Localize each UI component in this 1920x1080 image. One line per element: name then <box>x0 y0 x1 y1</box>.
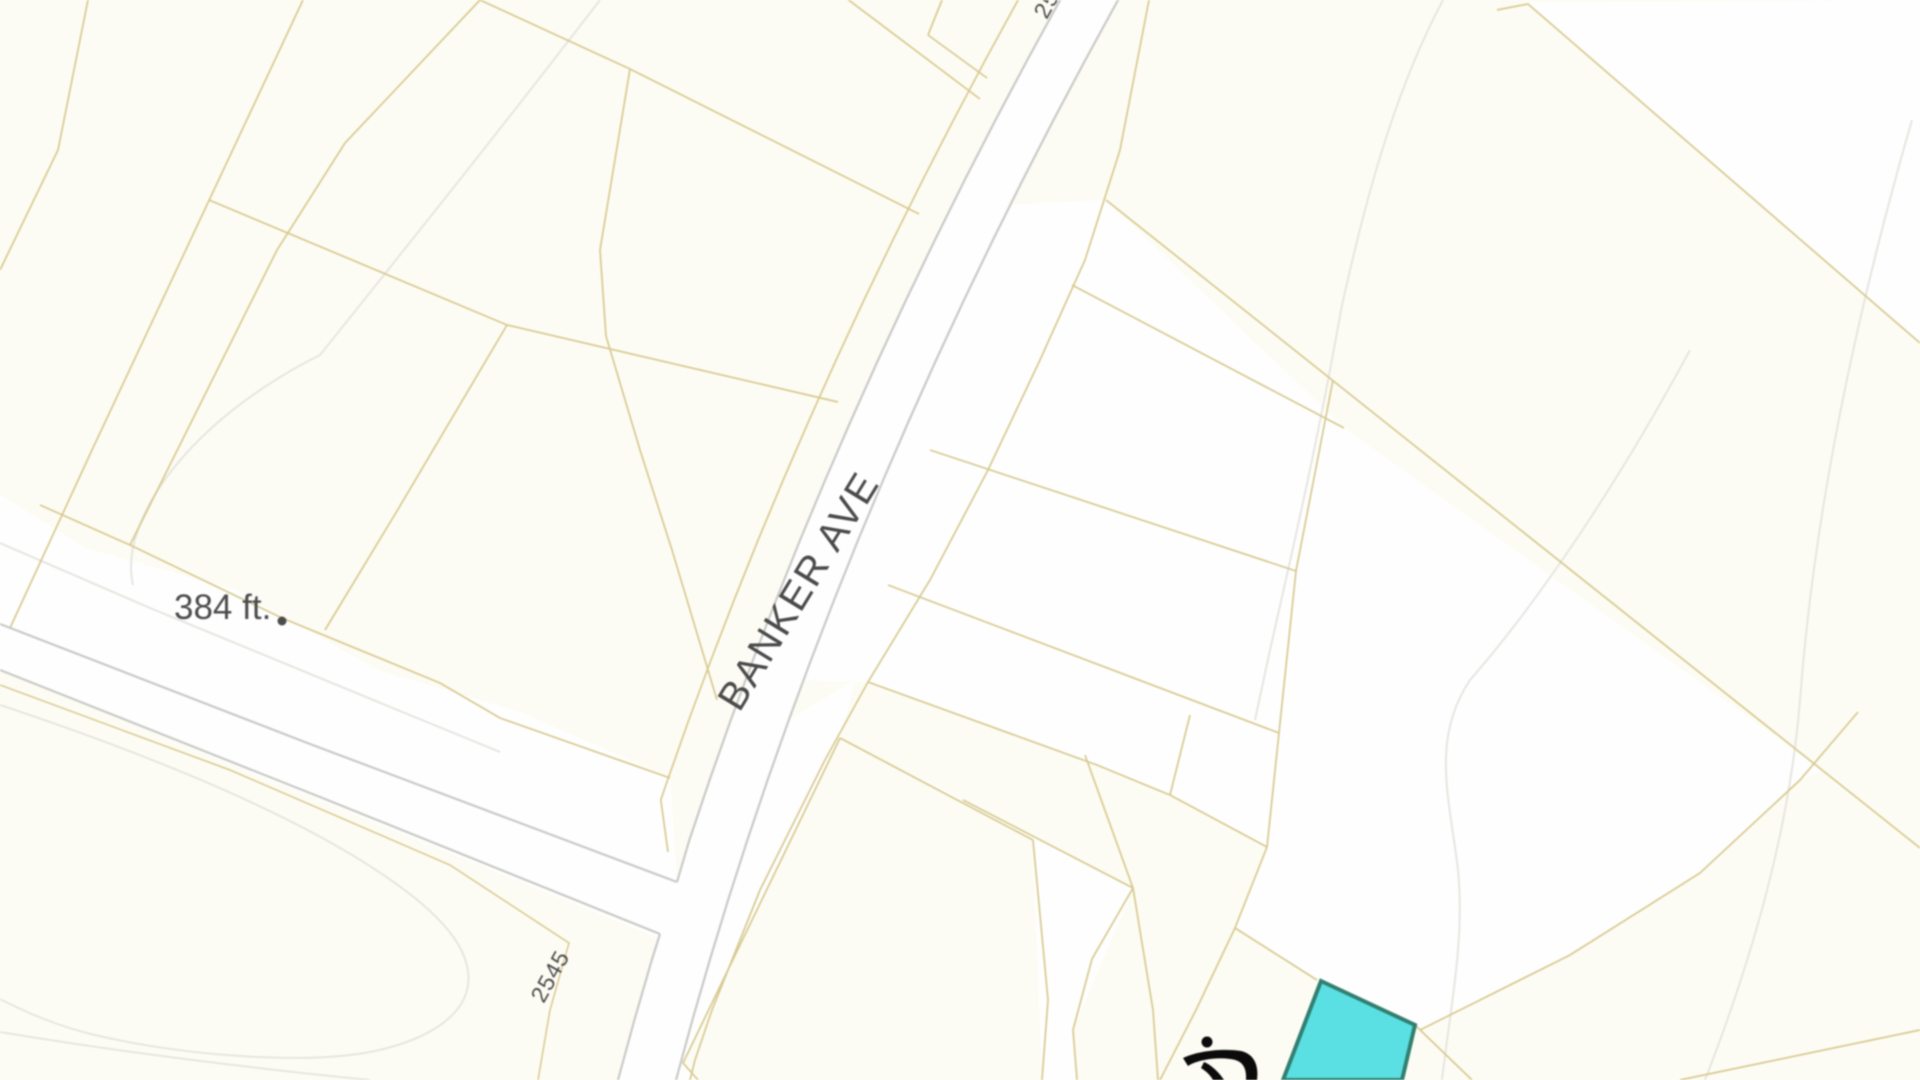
svg-text:384 ft.: 384 ft. <box>174 588 271 627</box>
